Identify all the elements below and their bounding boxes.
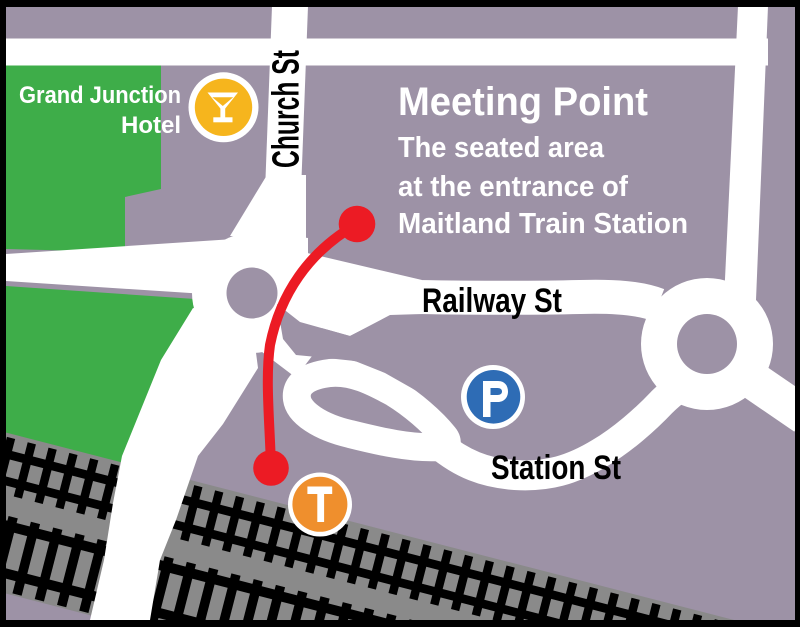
svg-text:Station St: Station St [491, 449, 621, 487]
svg-text:Railway St: Railway St [422, 282, 562, 320]
svg-text:The seated area: The seated area [398, 132, 605, 164]
svg-text:Church St: Church St [266, 50, 308, 168]
svg-text:Grand Junction: Grand Junction [19, 82, 181, 109]
svg-text:Hotel: Hotel [121, 112, 181, 139]
svg-text:Meeting Point: Meeting Point [398, 80, 648, 124]
svg-text:Maitland Train Station: Maitland Train Station [398, 208, 688, 240]
svg-text:at the entrance of: at the entrance of [398, 171, 628, 203]
